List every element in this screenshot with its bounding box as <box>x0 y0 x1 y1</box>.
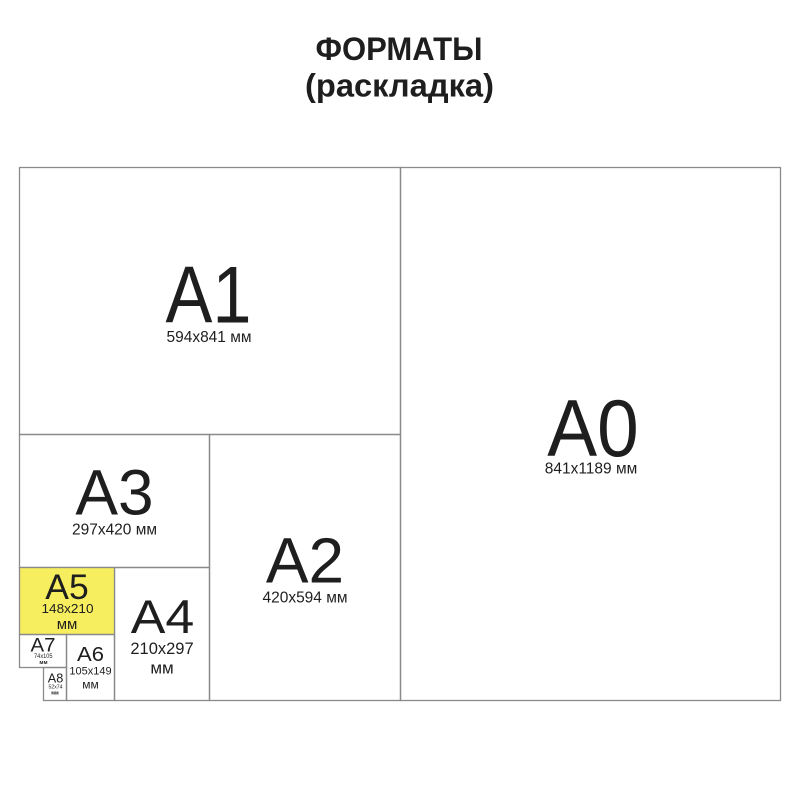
svg-text:ФОРМАТЫ: ФОРМАТЫ <box>316 31 483 67</box>
svg-text:A3: A3 <box>75 457 153 529</box>
svg-text:A1: A1 <box>166 251 252 341</box>
svg-text:594x841 мм: 594x841 мм <box>166 329 251 346</box>
svg-text:210x297: 210x297 <box>130 640 193 658</box>
svg-text:(раскладка): (раскладка) <box>305 67 494 103</box>
svg-text:мм: мм <box>51 691 59 697</box>
svg-text:A4: A4 <box>131 590 195 643</box>
svg-text:мм: мм <box>57 616 78 633</box>
svg-text:297x420 мм: 297x420 мм <box>72 522 157 539</box>
svg-text:A8: A8 <box>48 671 64 686</box>
svg-text:105x149: 105x149 <box>69 666 111 678</box>
svg-text:420x594 мм: 420x594 мм <box>262 590 347 607</box>
svg-text:148x210: 148x210 <box>42 601 94 616</box>
svg-text:A2: A2 <box>266 525 344 597</box>
svg-text:A6: A6 <box>77 644 104 666</box>
svg-text:мм: мм <box>82 678 99 692</box>
svg-text:841x1189 мм: 841x1189 мм <box>545 461 638 478</box>
svg-text:мм: мм <box>150 659 173 678</box>
svg-text:мм: мм <box>39 660 47 666</box>
